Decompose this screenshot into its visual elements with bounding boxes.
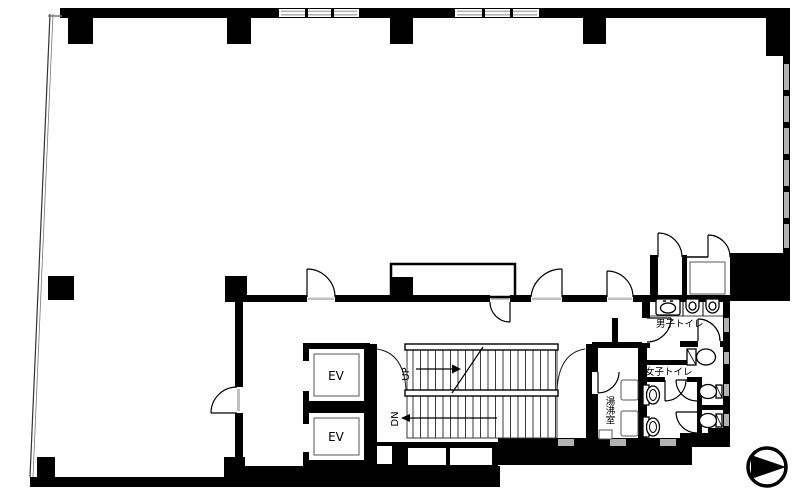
right-window-slot xyxy=(784,96,789,122)
bottom-window-slot xyxy=(558,439,574,446)
toilet-window-slot xyxy=(724,384,729,396)
kitchen-counter-icon xyxy=(621,411,638,436)
core-west-wall xyxy=(235,295,243,477)
washbasin-icon xyxy=(643,385,660,405)
elevator-door-slit-1 xyxy=(303,361,309,391)
stair-handrail-curve-right xyxy=(557,349,585,390)
toilet-icon xyxy=(700,414,723,428)
staircase: UP DN xyxy=(377,344,585,438)
kitchen-counter-icon xyxy=(599,430,612,439)
door-corridor xyxy=(490,302,510,322)
core-band-openings xyxy=(372,446,492,465)
womens-toilet-label: 女子トイレ xyxy=(645,366,693,378)
elevator-2-label: EV xyxy=(328,430,345,444)
bottom-column-1 xyxy=(37,457,55,487)
stair-west-wall xyxy=(370,344,377,466)
door-womens-entry xyxy=(665,380,686,401)
womens-stall-wall-2 xyxy=(697,410,702,443)
left-boundary-line xyxy=(30,14,62,477)
top-column-3 xyxy=(390,18,413,44)
door-vestibule-1 xyxy=(658,233,682,257)
room-labels: 男子トイレ 女子トイレ 湯沸室 xyxy=(604,319,704,425)
stair-mid-rail xyxy=(405,390,558,396)
compass-icon xyxy=(748,448,786,486)
corridor-stub-wall xyxy=(612,318,618,346)
toilet-window-slot xyxy=(724,414,729,426)
stair-treads-lower xyxy=(407,396,557,438)
elevator-1-label: EV xyxy=(328,369,345,383)
right-window-slot xyxy=(784,192,789,218)
stairs-up-label: UP xyxy=(401,367,412,380)
toilet-icon xyxy=(700,385,723,399)
right-window-slot xyxy=(784,224,789,248)
elevator-block: EV EV xyxy=(303,343,370,466)
door-office-2 xyxy=(531,269,562,297)
top-column-2 xyxy=(227,18,251,44)
washbasin-icon xyxy=(643,417,660,437)
down-arrow-head xyxy=(401,414,410,422)
top-window-band-2 xyxy=(455,9,539,17)
urinal-icon xyxy=(686,299,699,313)
right-window-slot xyxy=(784,128,789,154)
core-bottom-wall xyxy=(230,466,500,487)
corridor-south-wall xyxy=(592,342,650,348)
right-window-slot xyxy=(784,160,789,186)
bottom-window-slot xyxy=(660,439,676,446)
top-wall xyxy=(60,8,790,18)
urinal-icon xyxy=(706,299,719,313)
vestibule-wall-left xyxy=(650,255,658,302)
vestibule-inner-box xyxy=(690,262,725,294)
stairs-down-label: DN xyxy=(390,411,401,426)
floor-plan-canvas: EV EV UP DN xyxy=(0,0,800,493)
right-shaft-mass xyxy=(730,253,790,301)
door-office-3 xyxy=(607,271,633,297)
top-column-1 xyxy=(68,18,93,44)
toilet-window-slot xyxy=(724,318,729,332)
top-window-band-1 xyxy=(279,9,359,17)
right-window-slot xyxy=(784,64,789,90)
bottom-left-wall xyxy=(30,477,246,487)
door-office-1 xyxy=(307,269,335,297)
door-vestibule-2 xyxy=(708,235,730,257)
stair-east-wall xyxy=(586,344,593,442)
mens-toilet-label: 男子トイレ xyxy=(656,319,704,330)
stair-treads-upper xyxy=(407,350,557,390)
kitchenette-label: 湯沸室 xyxy=(604,395,616,424)
door-womens-stall-2 xyxy=(676,412,697,433)
door-kitchenette xyxy=(598,372,619,393)
kitchen-counter-icon xyxy=(621,380,638,400)
womens-upper-wall xyxy=(642,360,687,365)
toilet-window-slot xyxy=(724,352,729,364)
sink-icon xyxy=(656,299,680,315)
bottom-window-slot xyxy=(610,439,626,446)
room-column-left xyxy=(48,276,74,300)
door-womens-stall-1 xyxy=(676,380,697,401)
vestibule-wall-mid xyxy=(682,255,687,302)
elevator-door-slit-2 xyxy=(303,424,309,452)
door-elevator-hall xyxy=(211,387,237,413)
toilet-icon xyxy=(687,349,716,365)
top-column-4 xyxy=(583,18,606,44)
womens-stall-divider xyxy=(697,405,723,410)
